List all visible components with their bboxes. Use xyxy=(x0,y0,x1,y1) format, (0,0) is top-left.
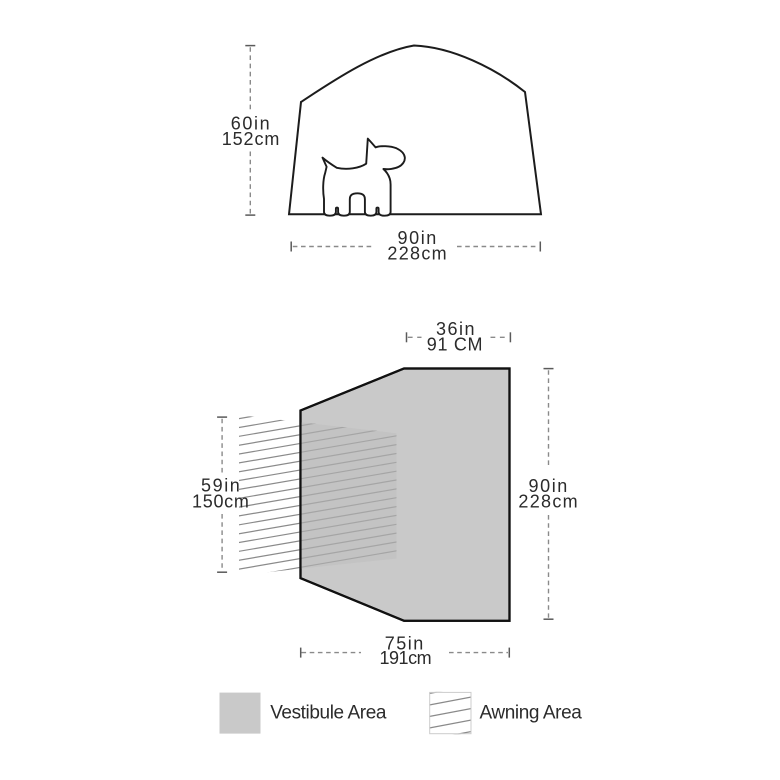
svg-text:91 CM: 91 CM xyxy=(427,334,484,354)
svg-text:191cm: 191cm xyxy=(380,648,432,668)
svg-text:152cm: 152cm xyxy=(222,129,281,149)
svg-text:Vestibule Area: Vestibule Area xyxy=(270,702,387,723)
svg-text:228cm: 228cm xyxy=(387,243,448,263)
svg-text:228cm: 228cm xyxy=(518,491,579,511)
svg-text:150cm: 150cm xyxy=(192,492,250,512)
svg-text:Awning Area: Awning Area xyxy=(480,702,583,723)
